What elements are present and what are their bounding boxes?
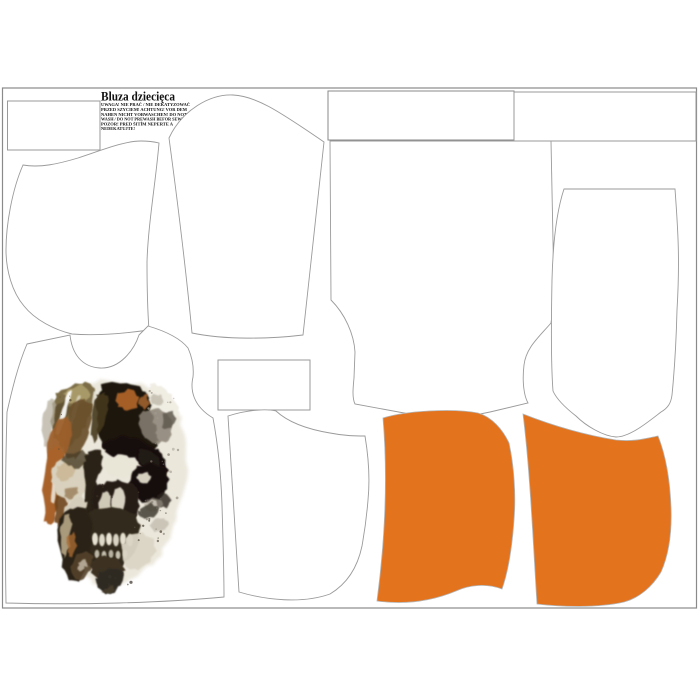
svg-text:NEDEKATUJTE!: NEDEKATUJTE! [101, 126, 135, 131]
